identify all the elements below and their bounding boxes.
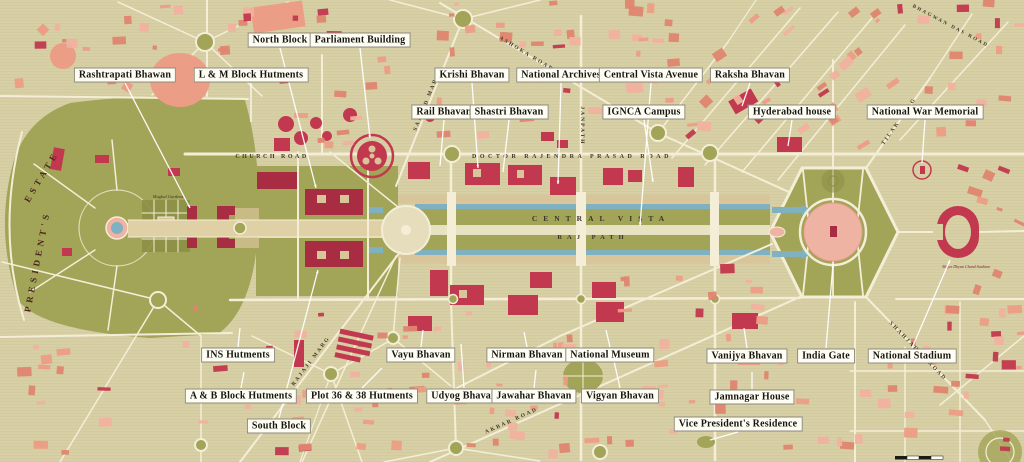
parliament-building-shape — [351, 135, 393, 177]
rail-bhavan-building — [408, 162, 430, 179]
jawahar-bhavan-building — [530, 272, 552, 288]
street-name-raj-path: RAJ PATH — [557, 234, 628, 241]
krishi-bhavan-building — [465, 163, 500, 185]
street-name-church-road: CHURCH ROAD — [235, 154, 308, 160]
vice-president-garden — [697, 436, 715, 448]
vigyan-bhavan-building — [592, 282, 616, 298]
nirman-bhavan-building — [508, 295, 538, 315]
estate-fountain — [106, 217, 128, 239]
north-block-building — [305, 189, 363, 215]
vanijya-bhavan-building — [732, 313, 758, 329]
shastri-bhavan-building — [508, 165, 542, 185]
small-label-mughal-gardens: Mughal Gardens — [152, 194, 184, 199]
india-gate-arch — [830, 226, 837, 237]
secretariat-annex — [257, 172, 297, 189]
scale-bar — [895, 456, 943, 460]
street-name-central-vista: CENTRAL VISTA — [532, 214, 670, 223]
central-vista-map: CHURCH ROADDOCTOR RAJENDRA PRASAD ROADCE… — [0, 0, 1024, 462]
map-canvas: CHURCH ROADDOCTOR RAJENDRA PRASAD ROADCE… — [0, 0, 1024, 462]
national-archives-building — [550, 177, 576, 195]
ignca-building — [678, 167, 694, 187]
south-block-building — [305, 241, 363, 267]
street-name-janpath: JANPATH — [579, 106, 585, 145]
rajpath-axis — [128, 220, 408, 237]
street-name-dr-rajendra-prasad-road: DOCTOR RAJENDRA PRASAD ROAD — [472, 154, 672, 160]
